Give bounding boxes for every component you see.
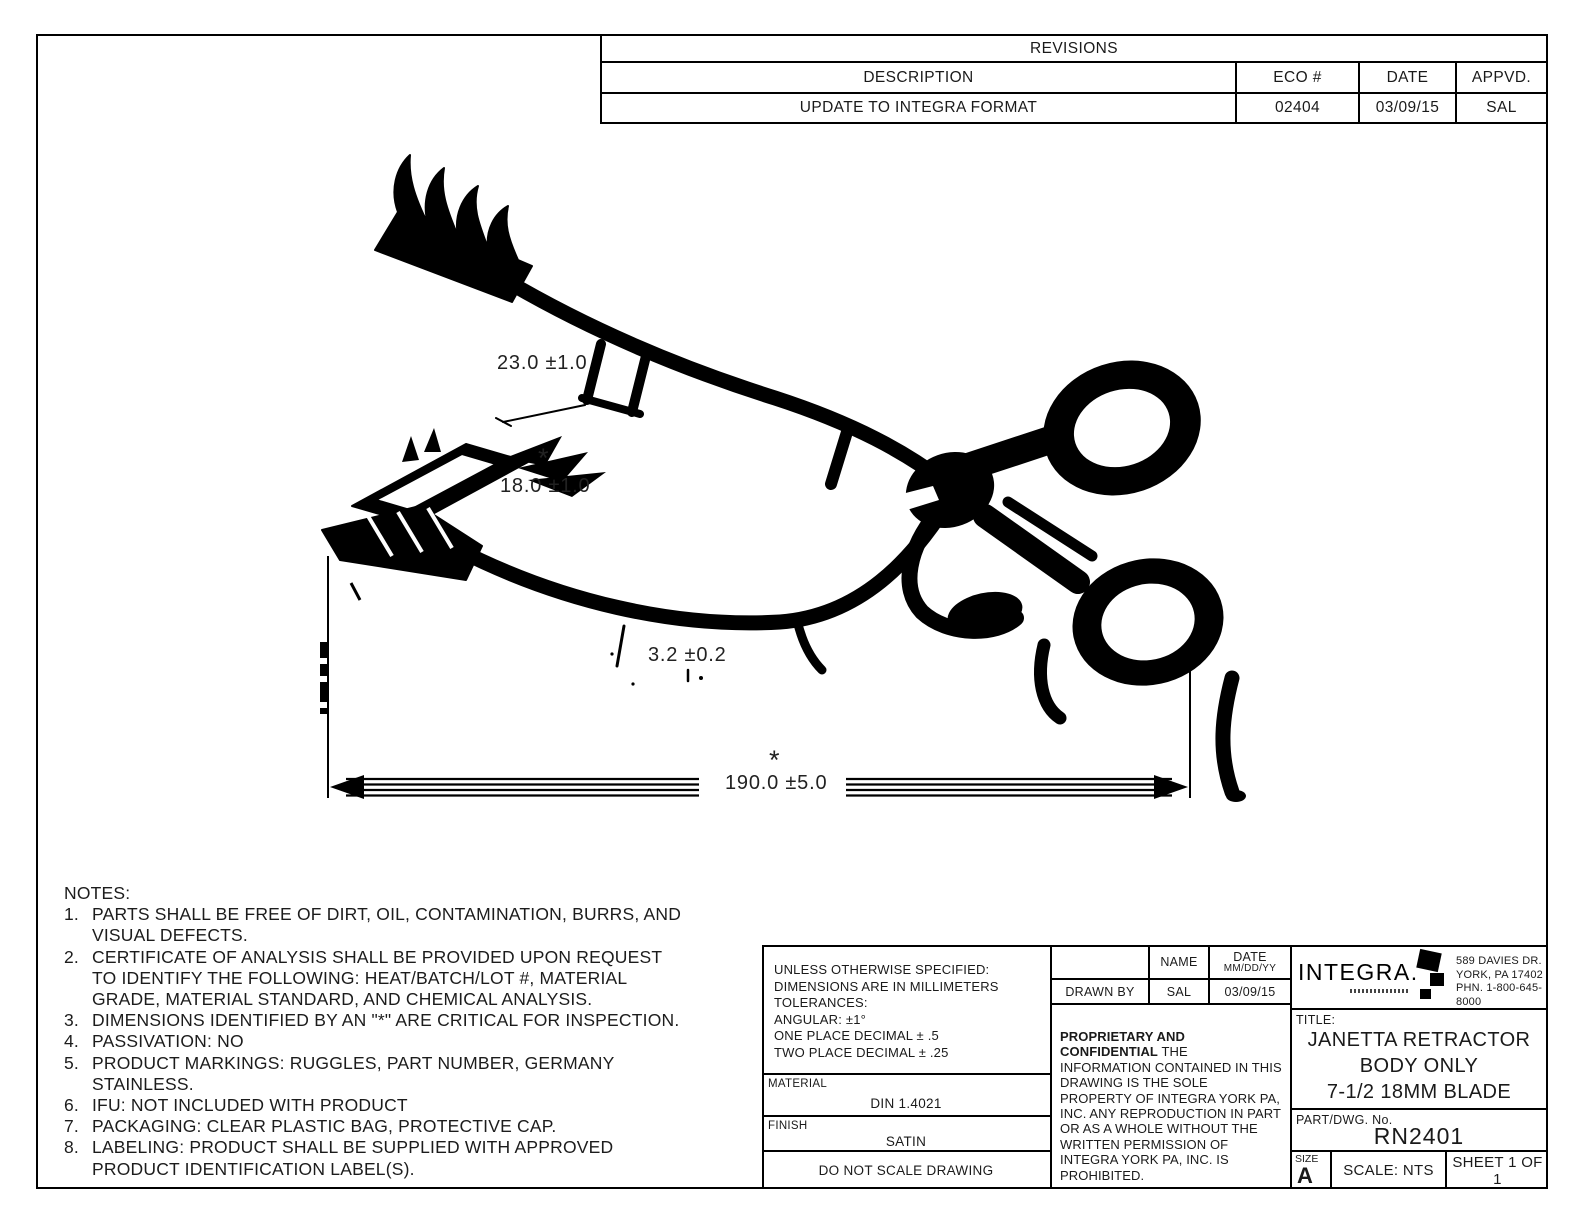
company-logo-box: INTEGRA. 589 DAVIES DR. YORK, PA 17402 P… (1290, 945, 1548, 1008)
note-number: 5. (64, 1053, 92, 1095)
note-item-4: 4. PASSIVATION: NO (64, 1031, 688, 1052)
note-item-2: 2. CERTIFICATE OF ANALYSIS SHALL BE PROV… (64, 947, 688, 1011)
drawing-title-line: JANETTA RETRACTOR (1290, 1027, 1548, 1053)
revisions-header-row: DESCRIPTION ECO # DATE APPVD. (602, 61, 1546, 92)
tolerance-line: TOLERANCES: (774, 995, 1050, 1012)
note-number: 7. (64, 1116, 92, 1137)
revisions-header-description: DESCRIPTION (602, 63, 1235, 92)
note-text: IFU: NOT INCLUDED WITH PRODUCT (92, 1095, 688, 1116)
address-line: PHN. 1-800-645-8000 (1456, 982, 1548, 1009)
part-number-box: PART/DWG. No. RN2401 (1290, 1108, 1548, 1150)
drawing-title-line: 7-1/2 18MM BLADE (1290, 1079, 1548, 1105)
revisions-data-row: UPDATE TO INTEGRA FORMAT 02404 03/09/15 … (602, 92, 1546, 122)
drawn-by-label: DRAWN BY (1052, 980, 1148, 1003)
dim-label-3-2: 3.2 ±0.2 (648, 644, 727, 667)
upper-shaft (505, 280, 945, 482)
material-label: MATERIAL (768, 1078, 827, 1090)
lower-finger-ring (1061, 545, 1236, 700)
revision-eco: 02404 (1235, 94, 1358, 122)
note-item-6: 6. IFU: NOT INCLUDED WITH PRODUCT (64, 1095, 688, 1116)
note-item-1: 1. PARTS SHALL BE FREE OF DIRT, OIL, CON… (64, 904, 688, 946)
revision-appvd: SAL (1455, 94, 1546, 122)
lower-shaft (455, 502, 948, 623)
revision-description: UPDATE TO INTEGRA FORMAT (602, 94, 1235, 122)
dim-label-23: 23.0 ±1.0 (497, 352, 587, 375)
drawing-title-line: BODY ONLY (1290, 1053, 1548, 1079)
note-item-7: 7. PACKAGING: CLEAR PLASTIC BAG, PROTECT… (64, 1116, 688, 1137)
finish-box: FINISH SATIN (762, 1115, 1050, 1150)
dim-label-190: 190.0 ±5.0 (725, 772, 827, 795)
note-number: 4. (64, 1031, 92, 1052)
note-text: PARTS SHALL BE FREE OF DIRT, OIL, CONTAM… (92, 904, 688, 946)
sheet-cell: SHEET 1 OF 1 (1445, 1152, 1548, 1189)
tolerance-line: ONE PLACE DECIMAL ± .5 (774, 1028, 1050, 1045)
tolerance-line: DIMENSIONS ARE IN MILLIMETERS (774, 979, 1050, 996)
extension-lines (328, 556, 1190, 798)
signature-blank-cell (1052, 945, 1148, 978)
retractor-drawing (280, 130, 1260, 830)
note-number: 2. (64, 947, 92, 1011)
note-item-3: 3. DIMENSIONS IDENTIFIED BY AN "*" ARE C… (64, 1010, 688, 1031)
logo-square-icon (1416, 949, 1441, 972)
revisions-title: REVISIONS (602, 36, 1546, 61)
revision-date: 03/09/15 (1358, 94, 1455, 122)
date-header: DATE MM/DD/YY (1208, 945, 1290, 978)
finish-label: FINISH (768, 1120, 808, 1132)
logo-square-icon (1430, 973, 1444, 986)
part-number: RN2401 (1290, 1123, 1548, 1150)
dim-star-18: * (538, 443, 549, 474)
note-item-5: 5. PRODUCT MARKINGS: RUGGLES, PART NUMBE… (64, 1053, 688, 1095)
tolerance-line: TWO PLACE DECIMAL ± .25 (774, 1045, 1050, 1062)
note-text: LABELING: PRODUCT SHALL BE SUPPLIED WITH… (92, 1137, 688, 1179)
drawn-by-name: SAL (1148, 980, 1208, 1003)
note-number: 1. (64, 904, 92, 946)
size-cell: SIZE A (1290, 1152, 1330, 1189)
revisions-header-date: DATE (1358, 63, 1455, 92)
proprietary-notice: PROPRIETARY AND CONFIDENTIAL THE INFORMA… (1052, 1005, 1290, 1183)
do-not-scale-text: DO NOT SCALE DRAWING (819, 1163, 994, 1178)
note-text: CERTIFICATE OF ANALYSIS SHALL BE PROVIDE… (92, 947, 688, 1011)
tolerance-line: ANGULAR: ±1° (774, 1012, 1050, 1029)
material-box: MATERIAL DIN 1.4021 (762, 1073, 1050, 1115)
title-block-middle-column: NAME DATE MM/DD/YY DRAWN BY SAL 03/09/15… (1050, 945, 1290, 1189)
note-text: PASSIVATION: NO (92, 1031, 688, 1052)
drawing-sheet-page: { "page": {"background": "#ffffff", "ink… (0, 0, 1584, 1224)
integra-logo-tagline (1350, 989, 1408, 993)
company-address: 589 DAVIES DR. YORK, PA 17402 PHN. 1-800… (1456, 955, 1548, 1009)
note-item-8: 8. LABELING: PRODUCT SHALL BE SUPPLIED W… (64, 1137, 688, 1179)
upper-finger-ring (1026, 341, 1219, 516)
notes-heading: NOTES: (64, 883, 688, 904)
integra-logo: INTEGRA. (1298, 959, 1419, 986)
date-header-text: DATE (1233, 950, 1267, 964)
tolerance-line: UNLESS OTHERWISE SPECIFIED: (774, 962, 1050, 979)
revisions-header-appvd: APPVD. (1455, 63, 1546, 92)
lower-claw-blade (322, 428, 606, 580)
note-text: PACKAGING: CLEAR PLASTIC BAG, PROTECTIVE… (92, 1116, 688, 1137)
scale-cell: SCALE: NTS (1330, 1152, 1445, 1189)
signature-header-row: NAME DATE MM/DD/YY (1052, 945, 1290, 980)
do-not-scale-box: DO NOT SCALE DRAWING (762, 1150, 1050, 1189)
note-text: PRODUCT MARKINGS: RUGGLES, PART NUMBER, … (92, 1053, 688, 1095)
title-label: TITLE: (1296, 1013, 1335, 1027)
size-value: A (1297, 1163, 1313, 1189)
note-number: 8. (64, 1137, 92, 1179)
date-header-sub: MM/DD/YY (1224, 964, 1276, 974)
note-number: 3. (64, 1010, 92, 1031)
dim-label-18: 18.0 ±1.0 (500, 475, 590, 498)
size-scale-sheet-row: SIZE A SCALE: NTS SHEET 1 OF 1 (1290, 1150, 1548, 1189)
logo-square-icon (1420, 989, 1431, 999)
proprietary-body: THE INFORMATION CONTAINED IN THIS DRAWIN… (1060, 1044, 1282, 1182)
signature-table: NAME DATE MM/DD/YY DRAWN BY SAL 03/09/15 (1052, 945, 1290, 1005)
address-line: YORK, PA 17402 (1456, 969, 1548, 983)
drawing-title-box: TITLE: JANETTA RETRACTOR BODY ONLY 7-1/2… (1290, 1008, 1548, 1108)
tolerance-box: UNLESS OTHERWISE SPECIFIED: DIMENSIONS A… (762, 945, 1050, 1073)
drawn-by-date: 03/09/15 (1208, 980, 1290, 1003)
address-line: 589 DAVIES DR. (1456, 955, 1548, 969)
drawn-by-row: DRAWN BY SAL 03/09/15 (1052, 980, 1290, 1005)
revisions-header-eco: ECO # (1235, 63, 1358, 92)
revisions-table: REVISIONS DESCRIPTION ECO # DATE APPVD. … (600, 34, 1548, 124)
name-header: NAME (1148, 945, 1208, 978)
note-number: 6. (64, 1095, 92, 1116)
note-text: DIMENSIONS IDENTIFIED BY AN "*" ARE CRIT… (92, 1010, 688, 1031)
notes-section: NOTES: 1. PARTS SHALL BE FREE OF DIRT, O… (64, 883, 688, 1180)
